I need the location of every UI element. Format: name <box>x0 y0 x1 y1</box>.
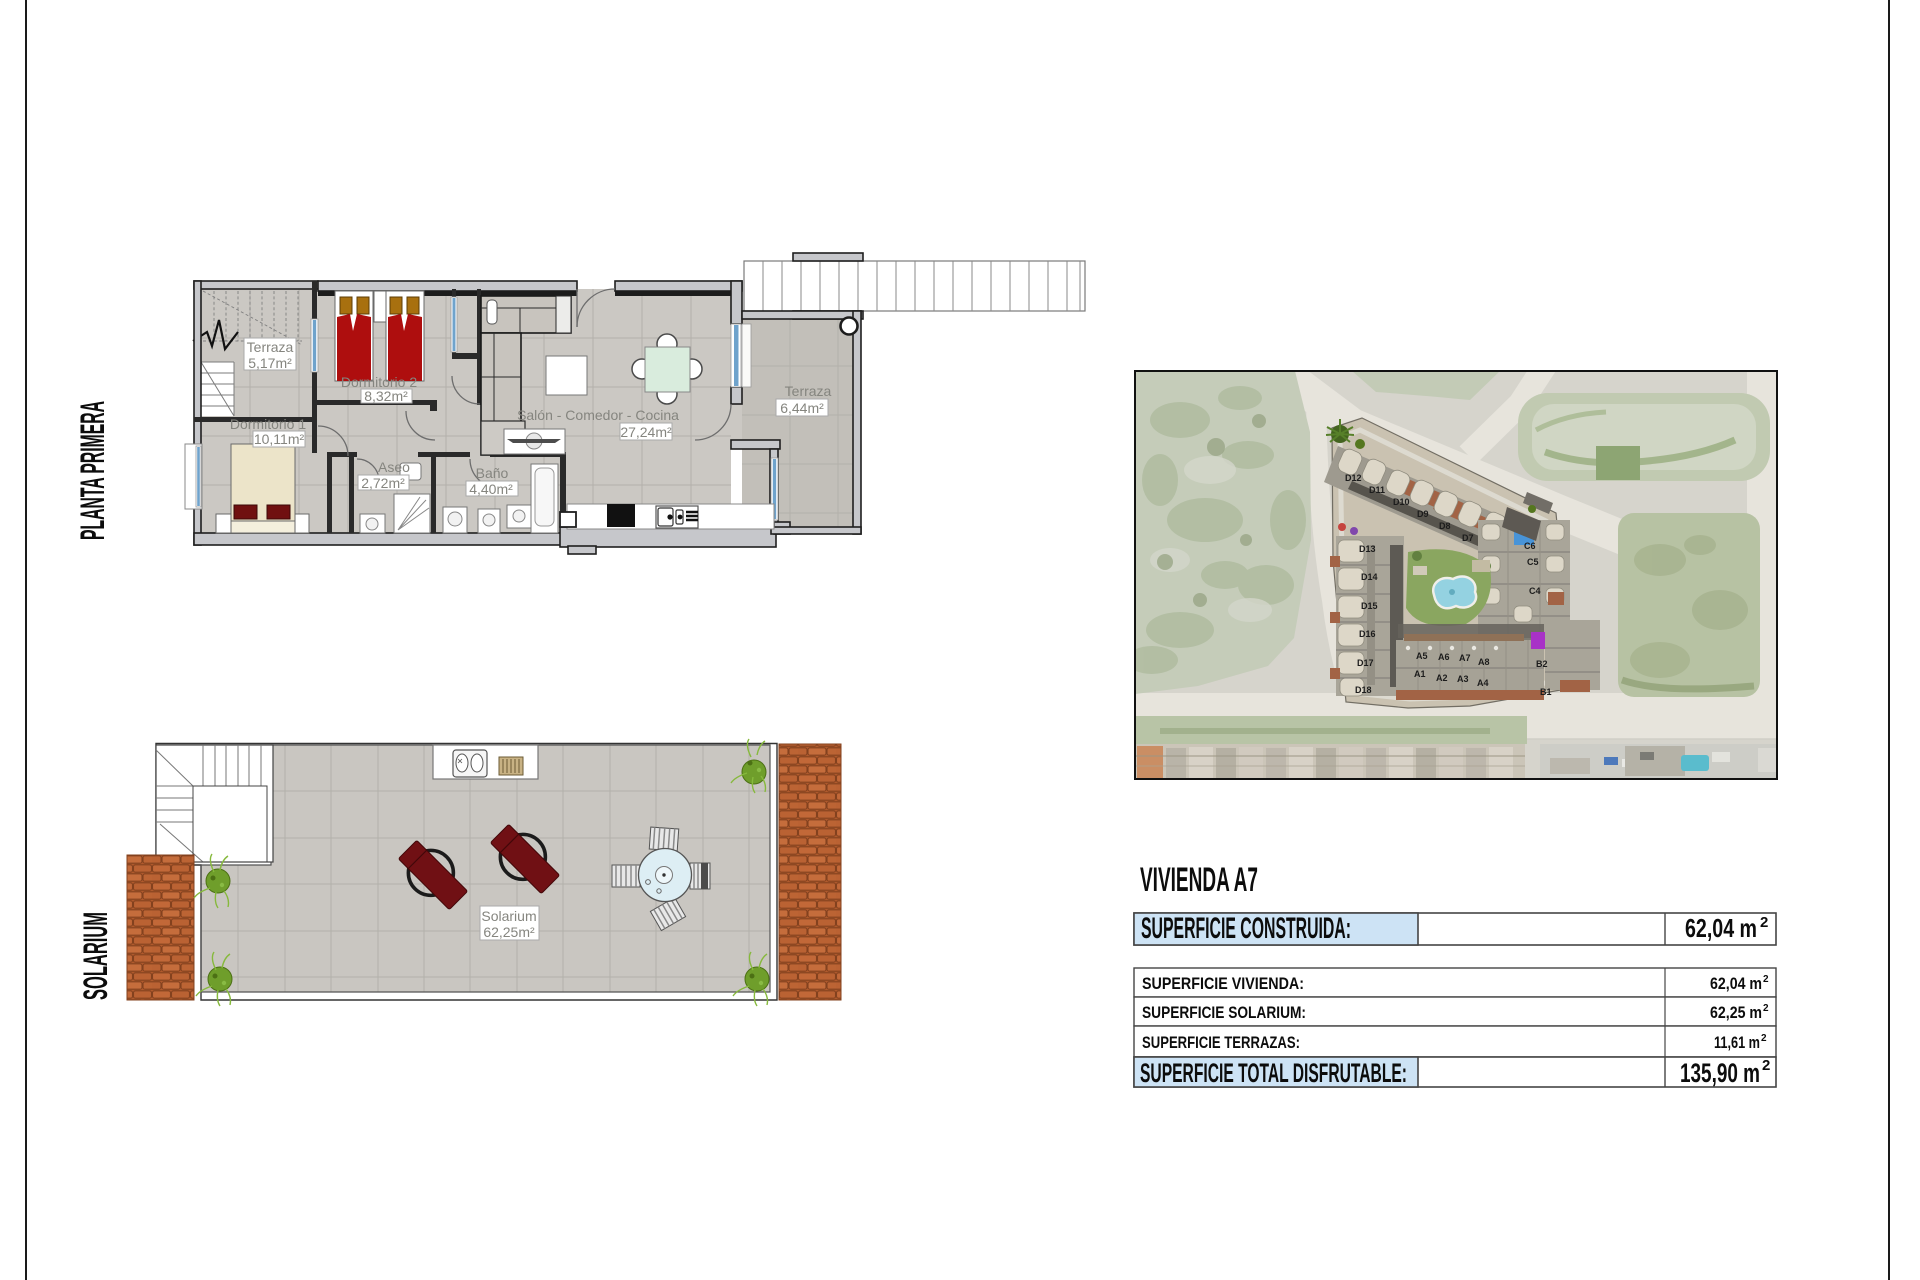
svg-text:135,90 m: 135,90 m <box>1680 1058 1760 1088</box>
svg-text:8,32m²: 8,32m² <box>364 388 408 404</box>
svg-text:VIVIENDA A7: VIVIENDA A7 <box>1140 861 1258 899</box>
svg-text:SUPERFICIE CONSTRUIDA:: SUPERFICIE CONSTRUIDA: <box>1141 912 1351 945</box>
svg-text:Terraza: Terraza <box>247 339 294 355</box>
svg-text:Terraza: Terraza <box>785 383 832 399</box>
svg-text:Dormitorio 1: Dormitorio 1 <box>230 416 306 432</box>
svg-text:2: 2 <box>1761 1033 1767 1044</box>
svg-text:SUPERFICIE TERRAZAS:: SUPERFICIE TERRAZAS: <box>1142 1034 1300 1052</box>
svg-text:SUPERFICIE SOLARIUM:: SUPERFICIE SOLARIUM: <box>1142 1004 1306 1022</box>
svg-text:62,25m²: 62,25m² <box>483 924 535 940</box>
svg-text:2,72m²: 2,72m² <box>361 475 405 491</box>
svg-text:11,61 m: 11,61 m <box>1714 1034 1760 1052</box>
svg-text:62,25 m: 62,25 m <box>1710 1004 1762 1022</box>
svg-text:62,04 m: 62,04 m <box>1710 975 1762 993</box>
svg-text:6,44m²: 6,44m² <box>780 400 824 416</box>
svg-text:Baño: Baño <box>476 465 509 481</box>
svg-text:SOLARIUM: SOLARIUM <box>77 912 115 1000</box>
svg-text:62,04 m: 62,04 m <box>1685 913 1757 943</box>
svg-text:2: 2 <box>1762 1057 1770 1074</box>
svg-text:SUPERFICIE VIVIENDA:: SUPERFICIE VIVIENDA: <box>1142 975 1304 993</box>
svg-text:PLANTA PRIMERA: PLANTA PRIMERA <box>74 401 112 540</box>
svg-text:10,11m²: 10,11m² <box>254 431 305 447</box>
svg-text:5,17m²: 5,17m² <box>248 355 292 371</box>
svg-text:2: 2 <box>1760 914 1768 931</box>
svg-text:Solarium: Solarium <box>481 908 536 924</box>
svg-text:Salón - Comedor - Cocina: Salón - Comedor - Cocina <box>517 407 679 423</box>
svg-text:Aseo: Aseo <box>378 459 410 475</box>
svg-text:SUPERFICIE TOTAL DISFRUTABLE:: SUPERFICIE TOTAL DISFRUTABLE: <box>1140 1058 1407 1088</box>
svg-text:2: 2 <box>1763 1003 1769 1014</box>
svg-text:27,24m²: 27,24m² <box>620 424 672 440</box>
svg-text:2: 2 <box>1763 974 1769 985</box>
svg-text:4,40m²: 4,40m² <box>469 481 513 497</box>
